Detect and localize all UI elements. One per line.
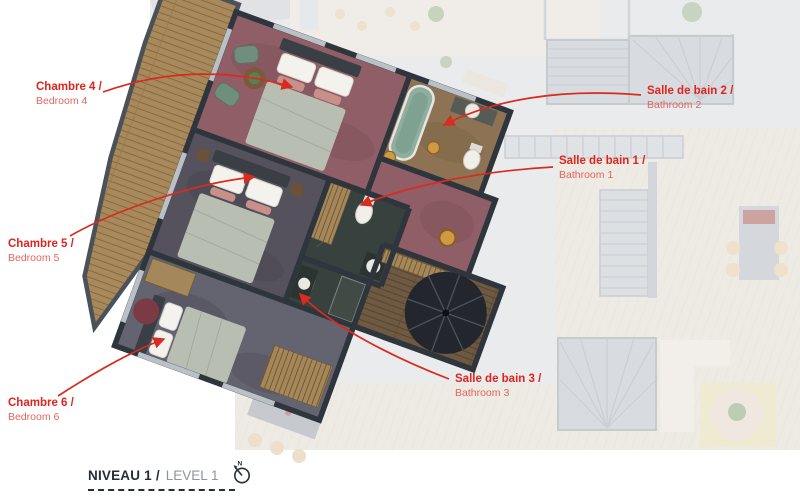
level-title-block: NIVEAU 1 / LEVEL 1 N — [88, 465, 253, 491]
label-bedroom-4-en: Bedroom 4 — [36, 95, 102, 108]
label-bedroom-6-fr: Chambre 6 / — [8, 397, 74, 410]
stair-lower-fan — [558, 338, 656, 430]
label-bathroom-3: Salle de bain 3 / Bathroom 3 — [455, 373, 541, 400]
level-title-underline — [88, 489, 235, 491]
label-bedroom-4-fr: Chambre 4 / — [36, 81, 102, 94]
label-bedroom-6-en: Bedroom 6 — [8, 411, 74, 424]
level-title-en: LEVEL 1 — [166, 468, 219, 483]
label-bathroom-2-fr: Salle de bain 2 / — [647, 85, 733, 98]
level-title-fr: NIVEAU 1 / — [88, 468, 160, 483]
label-bedroom-5-en: Bedroom 5 — [8, 252, 74, 265]
label-bathroom-2-en: Bathroom 2 — [647, 99, 733, 112]
floor-plan-canvas: Chambre 4 / Bedroom 4 Chambre 5 / Bedroo… — [0, 0, 800, 498]
north-letter: N — [237, 461, 242, 468]
label-bathroom-2: Salle de bain 2 / Bathroom 2 — [647, 85, 733, 112]
label-bathroom-3-fr: Salle de bain 3 / — [455, 373, 541, 386]
label-bedroom-6: Chambre 6 / Bedroom 6 — [8, 397, 74, 424]
north-compass-icon: N — [229, 459, 253, 485]
label-bathroom-3-en: Bathroom 3 — [455, 387, 541, 400]
label-bedroom-5-fr: Chambre 5 / — [8, 238, 74, 251]
label-bathroom-1-en: Bathroom 1 — [559, 169, 645, 182]
label-bedroom-5: Chambre 5 / Bedroom 5 — [8, 238, 74, 265]
label-bathroom-1-fr: Salle de bain 1 / — [559, 155, 645, 168]
label-bathroom-1: Salle de bain 1 / Bathroom 1 — [559, 155, 645, 182]
floor-plan-svg — [0, 0, 800, 498]
label-bedroom-4: Chambre 4 / Bedroom 4 — [36, 81, 102, 108]
